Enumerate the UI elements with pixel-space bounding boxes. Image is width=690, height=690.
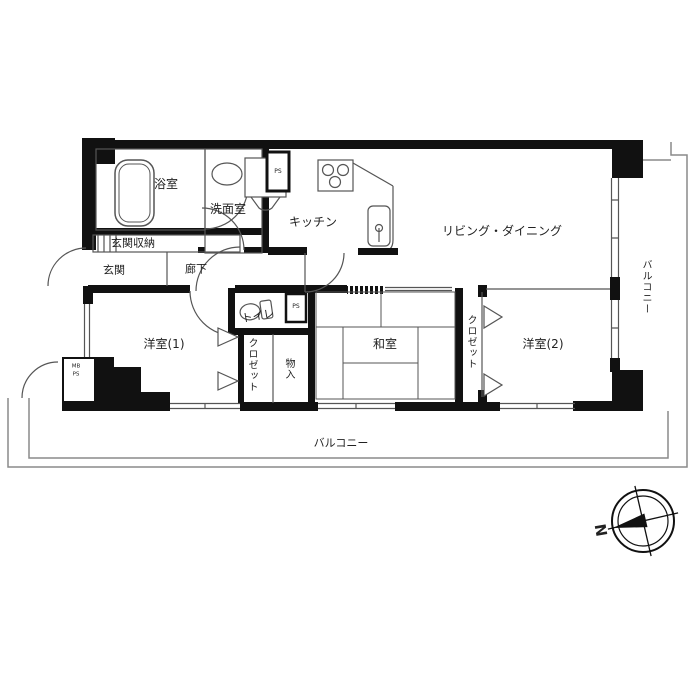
room-label-western1: 洋室(1) [144, 338, 185, 350]
room-label-closet2: クロゼット [465, 315, 475, 370]
room-label-kitchen: キッチン [289, 216, 337, 228]
kitchen-sink-icon [358, 206, 398, 255]
compass-icon [600, 478, 686, 564]
compass-north-label: N [594, 523, 611, 538]
room-label-entrance: 玄関 [103, 265, 125, 276]
room-label-bath: 浴室 [154, 178, 178, 190]
compass-needle [611, 514, 647, 535]
ps-label-top: PS [274, 169, 281, 175]
room-label-hallway: 廊下 [185, 264, 207, 275]
sliding-door-hatch [347, 286, 385, 294]
room-label-closet1: クロゼット [246, 338, 256, 393]
stove-icon [318, 160, 353, 191]
room-label-japanese: 和室 [373, 338, 397, 350]
washbasin-icon [212, 163, 242, 185]
ps-label-toilet: PS [292, 304, 299, 310]
ps-label-meterbox: PS [73, 372, 80, 378]
room-label-western2: 洋室(2) [523, 338, 564, 350]
meterbox-door-arc [22, 362, 58, 398]
room-label-entrance-storage: 玄関収納 [111, 238, 155, 249]
floor-plan-drawing [0, 0, 690, 690]
room-label-storage-in: 物入 [283, 358, 293, 380]
bathtub-icon [115, 160, 154, 226]
floor-plan: 浴室 洗面室 キッチン リビング・ダイニング 玄関収納 玄関 廊下 トイレ 洋室… [0, 0, 690, 690]
balcony-label-right: バルコニー [640, 260, 650, 315]
entrance-door-arc [48, 248, 86, 286]
mb-label: MB [72, 364, 81, 370]
room-label-living-dining: リビング・ダイニング [442, 225, 562, 237]
room-label-washroom: 洗面室 [210, 203, 246, 215]
balcony-label-bottom: バルコニー [314, 438, 369, 449]
